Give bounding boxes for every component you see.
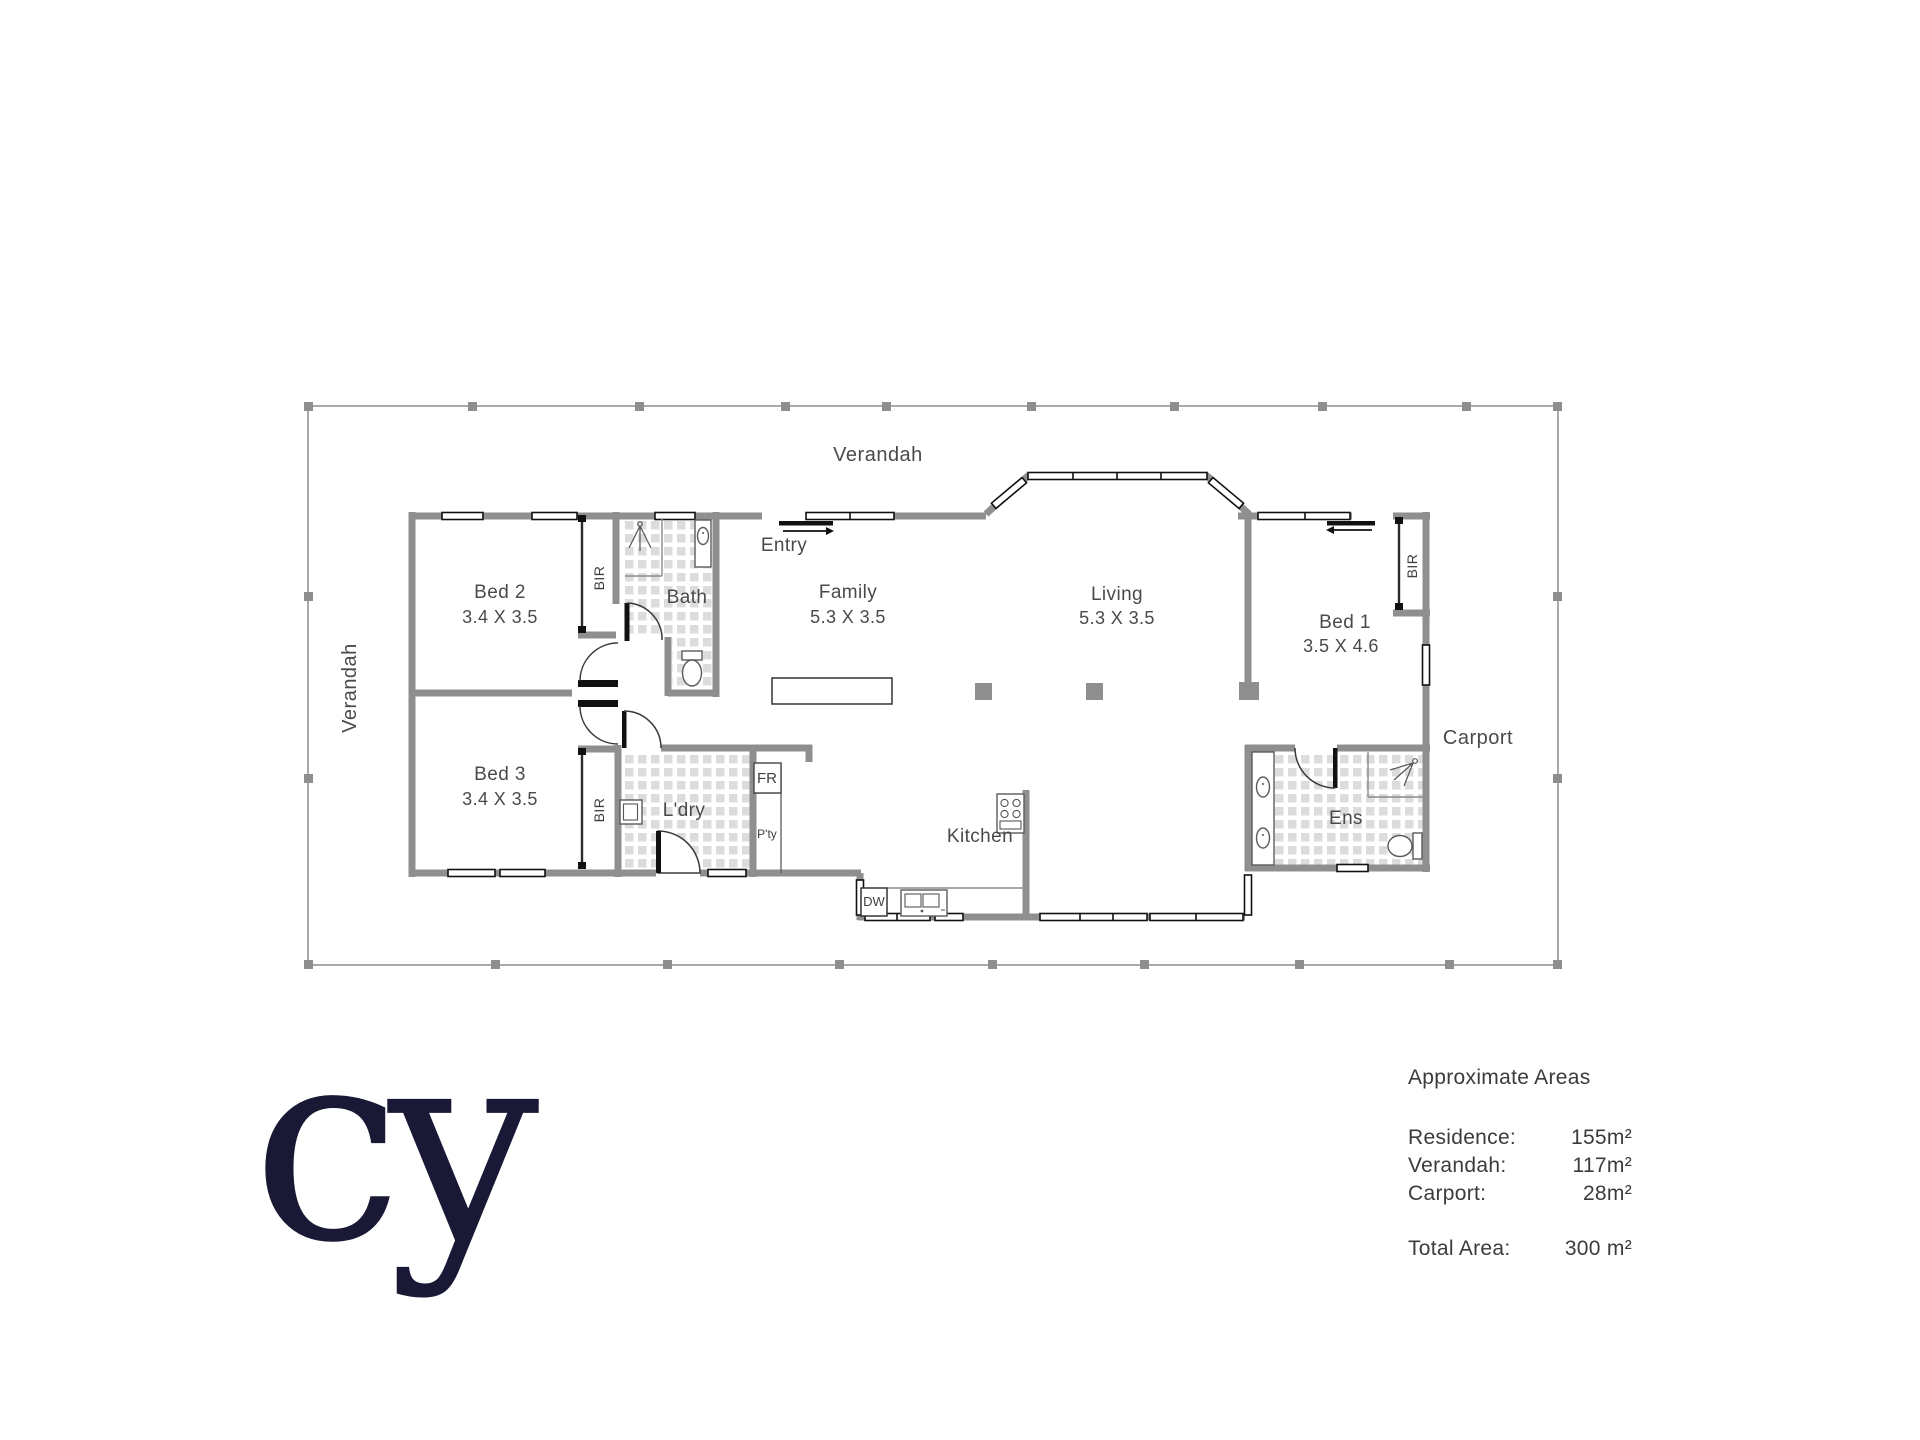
fridge-label: FR	[757, 770, 777, 787]
room-label-bed1: Bed 1	[1319, 612, 1371, 633]
pillar	[1239, 682, 1259, 700]
laundry-trough-icon	[620, 800, 642, 824]
room-label-laundry: L'dry	[663, 800, 706, 821]
room-dims-bed2: 3.4 X 3.5	[462, 607, 538, 627]
area-label: Residence:	[1408, 1124, 1516, 1152]
area-row-residence: Residence: 155m²	[1408, 1124, 1632, 1152]
verandah-boundary	[304, 402, 1562, 969]
floorplan-drawing: Verandah Verandah Carport Entry Bed 2 3.…	[0, 0, 1920, 1050]
area-label: Carport:	[1408, 1180, 1486, 1208]
verandah-label-left: Verandah	[339, 643, 361, 733]
approximate-areas: Approximate Areas Residence: 155m² Veran…	[1408, 1066, 1632, 1263]
area-label: Verandah:	[1408, 1152, 1506, 1180]
bir-label-bed1: BIR	[1404, 554, 1420, 579]
areas-title: Approximate Areas	[1408, 1066, 1632, 1090]
bed1-sliding-door	[1326, 521, 1375, 534]
pillar	[975, 683, 992, 700]
entry-label: Entry	[761, 535, 807, 556]
room-label-kitchen: Kitchen	[947, 826, 1013, 847]
room-label-ensuite: Ens	[1329, 808, 1363, 829]
sink-icon	[901, 890, 947, 916]
bir-label-bed2: BIR	[591, 566, 607, 591]
area-row-carport: Carport: 28m²	[1408, 1180, 1632, 1208]
carport-label: Carport	[1443, 727, 1513, 749]
room-dims-family: 5.3 X 3.5	[810, 607, 886, 627]
area-row-verandah: Verandah: 117m²	[1408, 1152, 1632, 1180]
verandah-label-top: Verandah	[833, 444, 923, 466]
verandah-posts	[304, 402, 1562, 969]
vanity-icon	[1252, 752, 1274, 865]
pantry-label: P'ty	[757, 827, 777, 841]
area-row-total: Total Area: 300 m²	[1408, 1235, 1632, 1263]
room-dims-bed1: 3.5 X 4.6	[1303, 636, 1379, 656]
area-value: 28m²	[1583, 1180, 1632, 1208]
room-label-living: Living	[1091, 584, 1143, 605]
room-label-bed3: Bed 3	[474, 764, 526, 785]
laundry-fixtures	[620, 800, 642, 824]
room-dims-bed3: 3.4 X 3.5	[462, 789, 538, 809]
total-label: Total Area:	[1408, 1235, 1511, 1263]
toilet-icon	[1388, 833, 1422, 859]
agency-logo: cy	[252, 1012, 526, 1280]
floorplan-page: Verandah Verandah Carport Entry Bed 2 3.…	[0, 0, 1920, 1440]
area-value: 117m²	[1573, 1152, 1632, 1180]
entry-sliding-door	[779, 521, 834, 535]
room-label-bed2: Bed 2	[474, 582, 526, 603]
area-value: 155m²	[1571, 1124, 1632, 1152]
room-dims-living: 5.3 X 3.5	[1079, 608, 1155, 628]
bir-label-bed3: BIR	[591, 798, 607, 823]
basin-icon	[695, 520, 711, 567]
room-label-family: Family	[819, 582, 877, 603]
room-label-bath: Bath	[667, 587, 708, 608]
pillar	[1086, 683, 1103, 700]
total-value: 300 m²	[1565, 1235, 1632, 1263]
island-bench	[772, 678, 892, 704]
toilet-icon	[682, 651, 702, 686]
dishwasher-label: DW	[863, 894, 885, 909]
kitchen-fixtures	[754, 678, 1024, 916]
